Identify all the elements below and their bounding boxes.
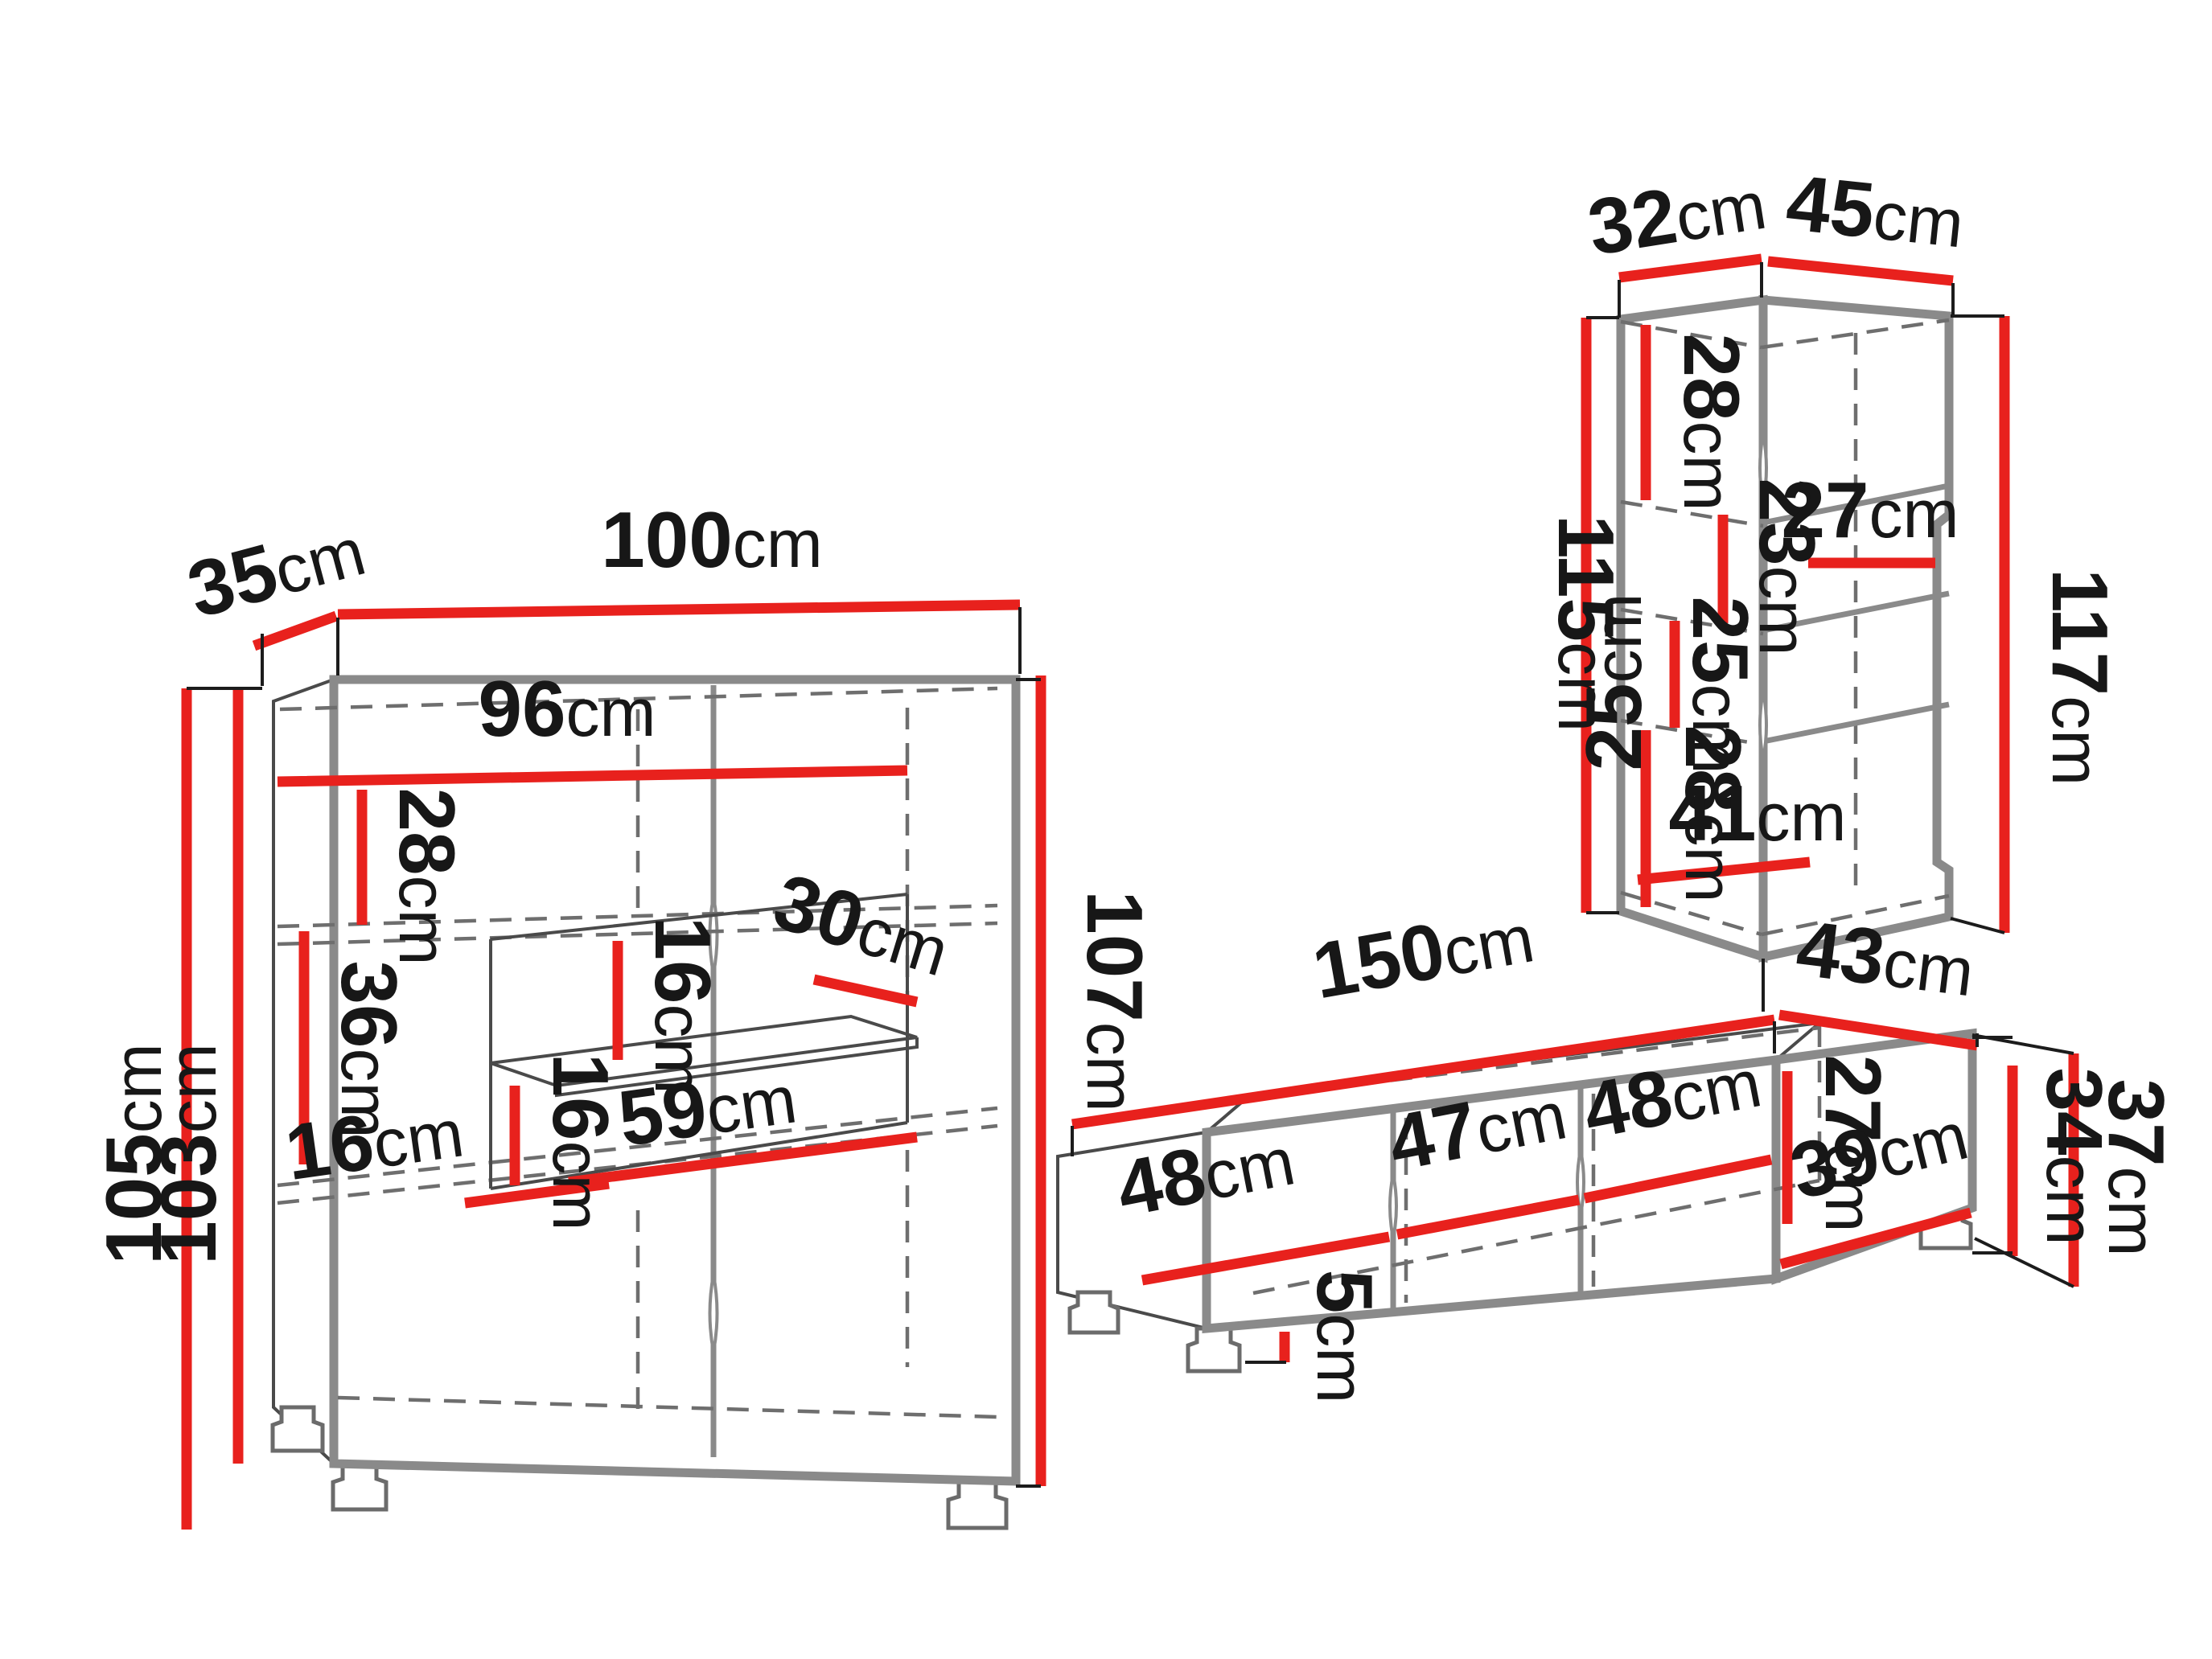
highboard-gap-lower-label: 16cm	[537, 1053, 625, 1231]
highboard-leg-back-left	[273, 1407, 323, 1451]
wall-cabinet-shelf-width-label: 27cm	[1782, 466, 1959, 554]
tv-stand-leg-height-label: 5cm	[1301, 1270, 1389, 1404]
wall-cabinet-depth-label: 32cm	[1582, 157, 1771, 272]
highboard-leg-right	[948, 1481, 1006, 1528]
highboard-top-section-label: 28cm	[383, 788, 471, 966]
highboard-height-total-label: 105cm	[89, 1043, 178, 1265]
tv-stand-height-total-label: 37cm	[2092, 1079, 2181, 1257]
wall-cabinet-group: 32cm 45cm 115cm 117cm 28cm 23cm 27cm 25c…	[1542, 157, 2124, 1012]
wall-cabinet-seam-lens-2	[1760, 692, 1766, 759]
diagram-page: 35cm 100cm 96cm 28cm 36cm 16cm 16cm 16cm…	[0, 0, 2212, 1659]
highboard-group: 35cm 100cm 96cm 28cm 36cm 16cm 16cm 16cm…	[89, 495, 1159, 1530]
wall-cabinet-width-label: 45cm	[1782, 158, 1968, 264]
wall-cabinet-height-right-label: 117cm	[2036, 569, 2124, 786]
highboard-leg-front-left	[333, 1464, 386, 1509]
highboard-width-label: 100cm	[601, 495, 823, 584]
wall-cabinet-section3a-label: 25cm	[1569, 593, 1658, 771]
tv-stand-group: 150cm 43cm 48cm 47cm 48cm 27cm 39cm 34cm…	[1058, 889, 2181, 1403]
highboard-inner-width-label: 96cm	[479, 664, 656, 753]
diagram-canvas: 35cm 100cm 96cm 28cm 36cm 16cm 16cm 16cm…	[0, 0, 2212, 1659]
highboard-door-seam-lens-2	[710, 1275, 717, 1352]
tv-stand-divider-lens-1	[1390, 1174, 1396, 1238]
tv-stand-leg-back-left	[1070, 1292, 1118, 1333]
wall-cabinet-section1-label: 28cm	[1667, 334, 1756, 511]
tv-stand-leg-front-left	[1188, 1328, 1240, 1371]
tv-stand-width-label: 150cm	[1306, 889, 1540, 1015]
wall-cabinet-bottom-width-label: 41cm	[1669, 769, 1847, 857]
highboard-height-right-label: 107cm	[1071, 890, 1159, 1112]
